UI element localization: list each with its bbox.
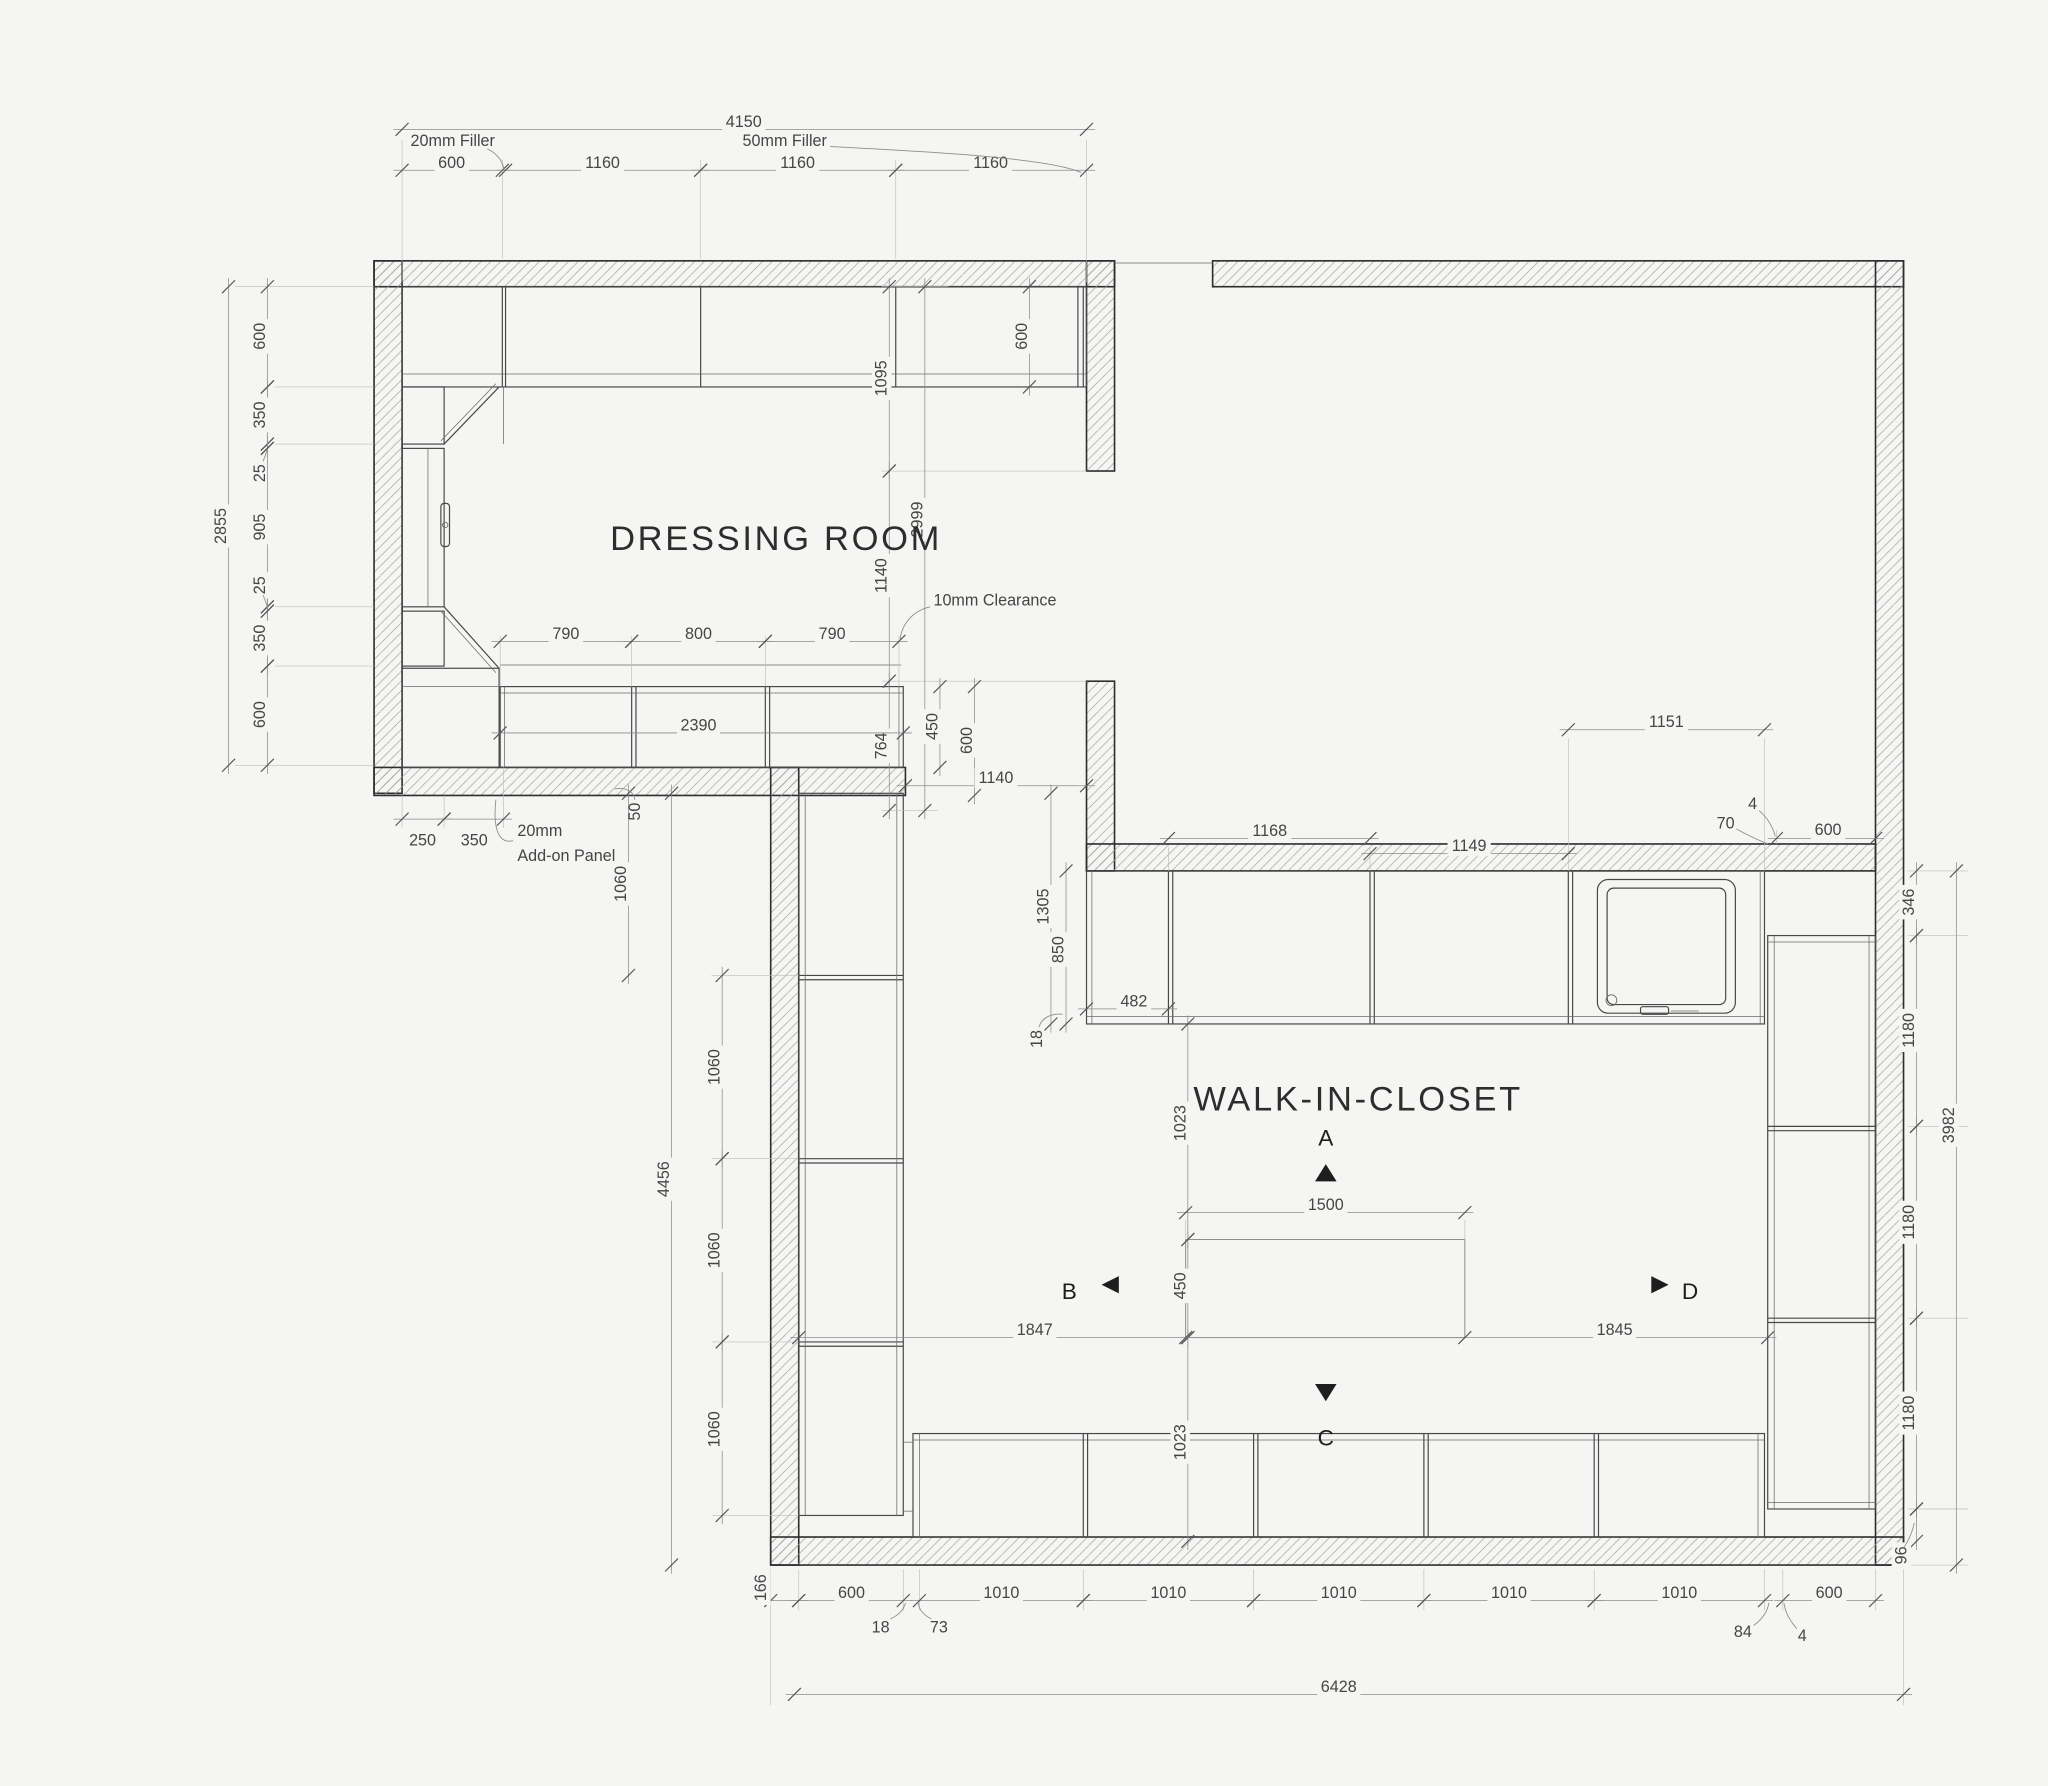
dim-label: 790 <box>552 625 579 643</box>
dim-label: 1160 <box>585 154 620 172</box>
wall-segment <box>374 767 905 795</box>
wall-segment <box>374 261 1114 287</box>
cabinet-outline <box>1607 888 1726 1004</box>
leader-line <box>1736 829 1767 844</box>
annotation-label: 10mm Clearance <box>933 591 1056 609</box>
floor-plan-drawing: 4150600116011601160285560035025905253506… <box>0 0 2048 1786</box>
dimension: 1060 <box>705 967 729 1167</box>
dim-label: 790 <box>819 625 846 643</box>
annotation: 20mm <box>517 822 562 840</box>
cabinet-outline <box>402 387 444 444</box>
dimension: 790 <box>757 624 908 648</box>
annotation-label: 84 <box>1734 1623 1752 1641</box>
dim-label: 1168 <box>1252 822 1287 840</box>
wall-segment <box>1087 681 1115 871</box>
dimension: 3982 <box>1939 862 1963 1573</box>
annotation: 4 <box>1784 1603 1807 1645</box>
leader-line <box>487 149 504 173</box>
wall-segment <box>771 767 799 1565</box>
section-arrow-icon <box>1315 1164 1337 1181</box>
dim-label: 25 <box>251 576 269 594</box>
dim-label: 6428 <box>1321 1678 1357 1696</box>
dim-label: 3982 <box>1940 1107 1958 1143</box>
dim-label: 1180 <box>1900 1013 1918 1048</box>
annotation: 73 <box>918 1603 947 1637</box>
dimension: 600 <box>1768 820 1884 845</box>
dimension: 600 <box>1774 1583 1884 1607</box>
annotation: 18 <box>1028 1014 1063 1048</box>
dimension: 1023 <box>1171 1015 1195 1248</box>
island-bench <box>1186 1240 1465 1338</box>
dim-label: 1060 <box>612 866 630 902</box>
dimension: 1151 <box>1560 712 1773 736</box>
dim-label: 1151 <box>1649 713 1684 731</box>
dimension: 1168 <box>1160 821 1379 845</box>
room-title: DRESSING ROOM <box>610 520 942 558</box>
dim-label: 600 <box>1815 821 1842 839</box>
dim-label: 2390 <box>681 716 717 734</box>
dim-label: 450 <box>923 713 941 740</box>
leader-line <box>495 800 513 841</box>
dim-label: 764 <box>873 732 891 759</box>
dimension: 1060 <box>705 1150 729 1350</box>
dim-label: 166 <box>752 1574 770 1601</box>
dimension: 600 <box>250 657 274 773</box>
dimension: 482 <box>1078 992 1177 1016</box>
cabinet-outline <box>402 611 444 666</box>
dim-label: 600 <box>838 1584 865 1602</box>
dimension: 1060 <box>705 1333 729 1524</box>
dim-label: 1847 <box>1017 1321 1053 1339</box>
dimension: 25 <box>250 572 274 619</box>
dimension: 450 <box>1171 1231 1195 1346</box>
dimension: 790 <box>492 624 641 648</box>
annotation: 84 <box>1734 1603 1769 1641</box>
dim-label: 350 <box>251 625 269 652</box>
dimension: 1010 <box>911 1583 1092 1607</box>
section-marker: B <box>1062 1276 1119 1304</box>
leader-line <box>1784 1603 1797 1629</box>
cabinet-outline <box>402 448 444 606</box>
wall-segment <box>1213 261 1904 287</box>
cabinet-outline <box>913 1434 1765 1537</box>
dimension: 764 <box>872 673 896 820</box>
annotation-label: 20mm Filler <box>411 132 496 150</box>
dim-label: 1160 <box>780 154 815 172</box>
section-arrow-icon <box>1651 1276 1668 1293</box>
annotation-label: 20mm <box>517 822 562 840</box>
dim-label: 1060 <box>706 1411 724 1447</box>
dimension: 4456 <box>654 785 678 1574</box>
dimension: 450 <box>923 678 947 776</box>
dim-label: 1180 <box>1900 1396 1918 1431</box>
dim-label: 1060 <box>706 1049 724 1085</box>
dim-label: 1023 <box>1171 1424 1189 1460</box>
dim-label: 1140 <box>873 558 891 593</box>
annotation-label: 70 <box>1717 814 1735 832</box>
room-titles: DRESSING ROOMWALK-IN-CLOSET <box>610 520 1523 1118</box>
dim-label: 25 <box>251 464 269 482</box>
dim-label: 250 <box>409 832 436 850</box>
dimension: 600 <box>393 153 510 177</box>
dim-label: 4150 <box>726 113 762 131</box>
dimension: 25 <box>250 435 274 486</box>
leader-line <box>1759 811 1775 837</box>
dim-label: 450 <box>1171 1272 1189 1299</box>
section-letter: A <box>1318 1126 1334 1151</box>
section-arrow-icon <box>1315 1384 1337 1401</box>
dim-label: 1095 <box>873 360 891 396</box>
dim-label: 905 <box>251 514 269 541</box>
dim-label: 4456 <box>655 1161 673 1197</box>
dim-label: 600 <box>438 154 465 172</box>
dim-label: 1010 <box>1321 1584 1357 1602</box>
dimension: 1500 <box>1177 1195 1473 1219</box>
dim-label: 600 <box>1013 323 1031 350</box>
dimension: 600 <box>250 278 274 395</box>
dim-label: 2855 <box>212 508 230 544</box>
dim-label: 1149 <box>1452 837 1487 855</box>
dim-label: 600 <box>251 323 269 350</box>
dim-label: 1010 <box>1150 1584 1186 1602</box>
dimension: 600 <box>790 1583 912 1607</box>
dimension: 600 <box>1012 278 1036 395</box>
dimension: 2390 <box>492 716 912 740</box>
wall-segment <box>771 1537 1904 1565</box>
annotation-label: 73 <box>930 1619 948 1637</box>
annotation-label: 18 <box>872 1619 890 1637</box>
dimension: 1845 <box>1456 1320 1776 1344</box>
dim-label: 482 <box>1120 992 1147 1010</box>
cabinet-outline <box>799 793 904 1515</box>
annotation: 18 <box>872 1603 906 1637</box>
cabinet-line <box>444 387 499 444</box>
dimension: 1160 <box>497 153 709 177</box>
fixture-detail <box>442 522 447 527</box>
dim-label: 1140 <box>979 769 1014 787</box>
dimension: 6428 <box>786 1677 1912 1701</box>
dimension: 1140 <box>897 769 1095 793</box>
leader-line <box>830 147 1081 173</box>
dim-label: 600 <box>251 701 269 728</box>
dim-label: 1060 <box>706 1232 724 1268</box>
dimension: 1160 <box>692 153 904 177</box>
dim-label: 1305 <box>1034 888 1052 924</box>
dim-label: 350 <box>461 832 488 850</box>
dim-label: 1160 <box>973 154 1008 172</box>
section-arrow-icon <box>1102 1276 1119 1293</box>
wall-segment <box>1087 261 1115 471</box>
dim-label: 350 <box>251 401 269 428</box>
dimension: 1023 <box>1171 1329 1195 1550</box>
dim-label: 600 <box>958 727 976 754</box>
dim-label: 1010 <box>983 1584 1019 1602</box>
annotation-label: 50 <box>626 803 644 821</box>
dim-label: 600 <box>1816 1584 1843 1602</box>
cabinet-outline <box>1768 936 1876 1509</box>
dim-label: 1845 <box>1597 1321 1633 1339</box>
cabinet-outline <box>1087 871 1765 1024</box>
dimension: 1847 <box>790 1320 1194 1344</box>
dimension: 1140 <box>872 462 896 689</box>
dimension: 1010 <box>1245 1583 1433 1607</box>
dimension: 2855 <box>211 278 235 774</box>
cabinet-line <box>441 384 496 441</box>
leader-line <box>918 1603 931 1619</box>
dim-label: 1010 <box>1661 1584 1697 1602</box>
section-marker: C <box>1315 1384 1337 1450</box>
cabinet-outline <box>402 287 1086 387</box>
annotation: 4 <box>1748 795 1775 836</box>
dim-label: 850 <box>1049 936 1067 963</box>
floor-plan-page: 4150600116011601160285560035025905253506… <box>0 0 2048 1786</box>
dim-label: 1010 <box>1491 1584 1527 1602</box>
section-letter: D <box>1682 1279 1698 1304</box>
cabinet-line <box>441 611 496 672</box>
annotation-label: 4 <box>1798 1627 1807 1645</box>
annotation-label: 18 <box>1028 1030 1046 1048</box>
annotation-label: Add-on Panel <box>517 847 615 865</box>
dim-label: 96 <box>1892 1546 1910 1564</box>
dimension: 1095 <box>872 278 896 480</box>
dimension: 1010 <box>1415 1583 1603 1607</box>
dimension: 1305 <box>1034 785 1058 1033</box>
section-letter: B <box>1062 1279 1077 1304</box>
cabinet-outline <box>402 668 499 767</box>
section-marker: A <box>1315 1126 1337 1182</box>
section-markers: ACBD <box>1062 1126 1699 1451</box>
dimension: 1010 <box>1586 1583 1774 1607</box>
dimension: 800 <box>623 624 774 648</box>
annotation: 70 <box>1717 814 1768 843</box>
annotation: 10mm Clearance <box>900 591 1056 639</box>
cabinet-line <box>444 607 499 668</box>
wall-segment <box>374 261 402 793</box>
dim-label: 1023 <box>1171 1105 1189 1141</box>
dim-label: 346 <box>1900 889 1918 916</box>
section-letter: C <box>1318 1425 1334 1450</box>
room-title: WALK-IN-CLOSET <box>1193 1080 1523 1118</box>
dim-label: 800 <box>685 625 712 643</box>
dim-label: 1500 <box>1308 1196 1344 1214</box>
walls <box>374 261 1903 1565</box>
annotation-label: 4 <box>1748 795 1757 813</box>
leader-line <box>900 607 930 639</box>
dimension: 350 <box>435 813 512 851</box>
cabinet-outline <box>1597 880 1735 1014</box>
dim-label: 1180 <box>1900 1205 1918 1240</box>
annotation-label: 50mm Filler <box>743 132 828 150</box>
section-marker: D <box>1651 1276 1698 1304</box>
leader-line <box>1754 1603 1769 1626</box>
dimension: 1010 <box>1075 1583 1263 1607</box>
